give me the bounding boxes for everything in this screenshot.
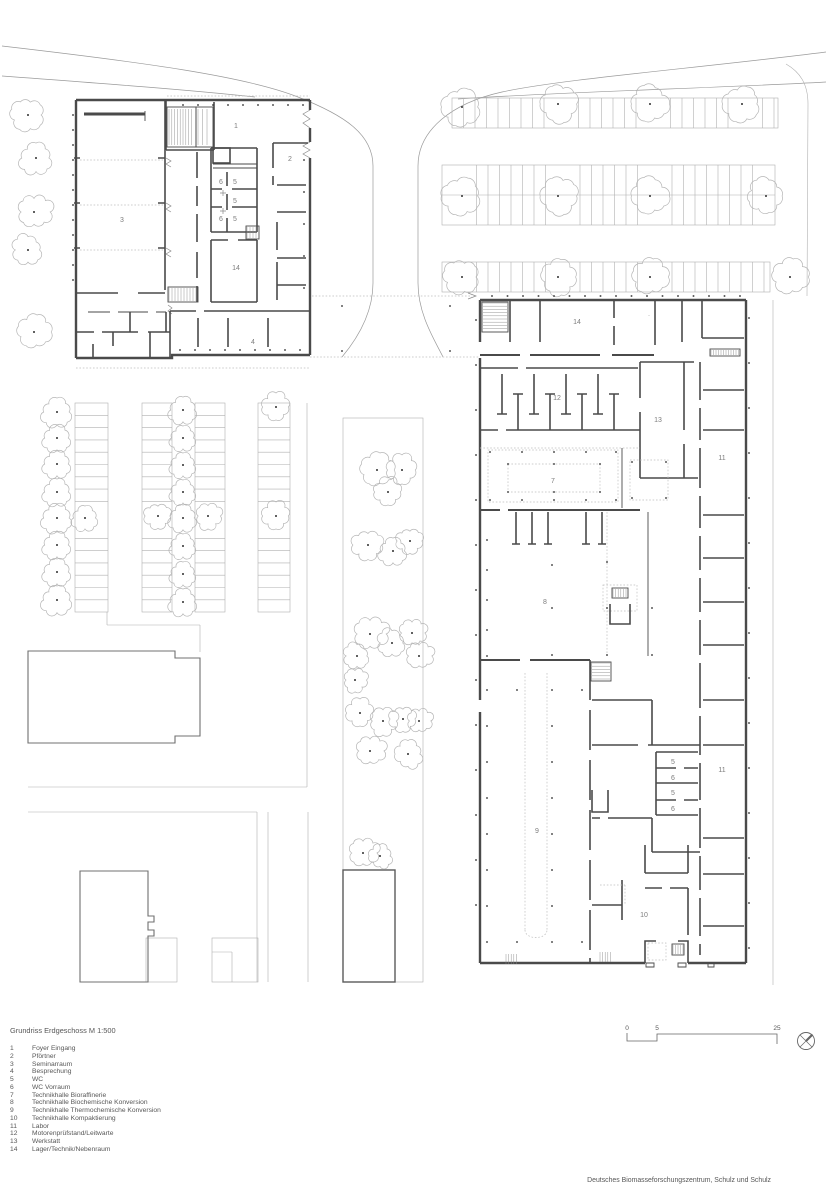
room-label: 6 bbox=[671, 775, 675, 782]
neighbor-buildings bbox=[28, 651, 200, 982]
tree-symbol bbox=[406, 642, 435, 667]
legend-item-number: 6 bbox=[10, 1084, 32, 1092]
legend-item-number: 2 bbox=[10, 1053, 32, 1061]
tree-symbol bbox=[407, 708, 433, 731]
tree-symbol bbox=[343, 642, 368, 669]
scale-tick-label: 0 bbox=[625, 1025, 629, 1032]
room-label: 11 bbox=[718, 767, 725, 774]
tree-symbol bbox=[722, 86, 759, 123]
legend-item-number: 9 bbox=[10, 1107, 32, 1115]
tree-symbol bbox=[370, 707, 399, 736]
legend-item-label: Werkstatt bbox=[32, 1138, 60, 1146]
legend-item-number: 3 bbox=[10, 1061, 32, 1069]
room-label: 14 bbox=[573, 319, 581, 326]
plaza bbox=[76, 96, 480, 368]
room-label: 3 bbox=[120, 217, 124, 224]
tree-symbol bbox=[772, 258, 810, 294]
legend-item: 7Technikhalle Bioraffinerie bbox=[10, 1092, 161, 1100]
room-label: 6 bbox=[219, 179, 223, 186]
tree-symbol bbox=[346, 697, 374, 726]
tree-symbol bbox=[262, 391, 290, 420]
room-legend: 1Foyer Eingang2Pförtner3Seminarraum4Besp… bbox=[10, 1045, 161, 1154]
tree-symbol bbox=[262, 500, 290, 529]
tree-symbol bbox=[40, 397, 71, 428]
room-label: 5 bbox=[671, 759, 675, 766]
room-label: 5 bbox=[233, 216, 237, 223]
legend-item: 8Technikhalle Biochemische Konversion bbox=[10, 1099, 161, 1107]
legend-item: 9Technikhalle Thermochemische Konversion bbox=[10, 1107, 161, 1115]
room-label: 6 bbox=[671, 806, 675, 813]
legend-item-number: 11 bbox=[10, 1123, 32, 1131]
drawing-sheet: 126556531441412131178565611910 0525 Grun… bbox=[0, 0, 828, 1200]
tree-symbol bbox=[443, 261, 479, 295]
legend-item: 14Lager/Technik/Nebenraum bbox=[10, 1146, 161, 1154]
legend-item-label: Technikhalle Kompaktierung bbox=[32, 1115, 116, 1123]
legend-item-number: 12 bbox=[10, 1130, 32, 1138]
legend-item-label: WC bbox=[32, 1076, 43, 1084]
stair-hatching bbox=[169, 109, 739, 964]
legend-item: 11Labor bbox=[10, 1123, 161, 1131]
legend-item-number: 4 bbox=[10, 1068, 32, 1076]
tree-symbol bbox=[356, 736, 387, 764]
room-label: 9 bbox=[535, 828, 539, 835]
tree-symbol bbox=[349, 838, 380, 866]
legend-item: 12Motorenprüfstand/Leitwarte bbox=[10, 1130, 161, 1138]
project-caption: Deutsches Biomasseforschungszentrum, Sch… bbox=[587, 1177, 771, 1184]
site-plan-drawing: 126556531441412131178565611910 0525 bbox=[0, 0, 828, 1200]
legend-item-label: Besprechung bbox=[32, 1068, 71, 1076]
tree-symbol bbox=[196, 503, 223, 530]
legend-item-label: Pförtner bbox=[32, 1053, 56, 1061]
legend-item-label: Seminarraum bbox=[32, 1061, 72, 1069]
legend-item: 6WC Vorraum bbox=[10, 1084, 161, 1092]
tree-symbol bbox=[12, 233, 42, 264]
room-label: 13 bbox=[654, 417, 662, 424]
tree-symbol bbox=[540, 85, 578, 125]
legend-item-number: 8 bbox=[10, 1099, 32, 1107]
legend-item-number: 14 bbox=[10, 1146, 32, 1154]
green-strip bbox=[343, 418, 423, 982]
room-label: 12 bbox=[553, 395, 561, 402]
room-label: 11 bbox=[718, 455, 725, 462]
tree-symbol bbox=[17, 314, 52, 348]
tree-symbol bbox=[40, 503, 71, 534]
tree-symbol bbox=[10, 100, 44, 132]
legend-item: 5WC bbox=[10, 1076, 161, 1084]
legend-item-number: 5 bbox=[10, 1076, 32, 1084]
tree-symbol bbox=[344, 668, 368, 693]
legend-item: 4Besprechung bbox=[10, 1068, 161, 1076]
legend-item-number: 1 bbox=[10, 1045, 32, 1053]
drawing-title: Grundriss Erdgeschoss M 1:500 bbox=[10, 1026, 116, 1035]
tree-symbol bbox=[360, 452, 395, 486]
scale-bar: 0525 bbox=[625, 1025, 781, 1044]
legend-item: 2Pförtner bbox=[10, 1053, 161, 1061]
tree-symbol bbox=[441, 177, 480, 216]
trees-layer bbox=[10, 84, 810, 869]
room-label: 5 bbox=[233, 198, 237, 205]
legend-item-label: Labor bbox=[32, 1123, 49, 1131]
room-label: 1 bbox=[234, 123, 238, 130]
tree-symbol bbox=[18, 142, 51, 175]
room-label: 5 bbox=[671, 790, 675, 797]
scale-tick-label: 25 bbox=[773, 1025, 781, 1032]
room-label: 14 bbox=[232, 265, 240, 272]
room-label: 10 bbox=[640, 912, 648, 919]
legend-item: 13Werkstatt bbox=[10, 1138, 161, 1146]
legend-item: 3Seminarraum bbox=[10, 1061, 161, 1069]
scale-tick-label: 5 bbox=[655, 1025, 659, 1032]
room-label: 5 bbox=[233, 179, 237, 186]
legend-item-number: 13 bbox=[10, 1138, 32, 1146]
legend-item-label: Technikhalle Thermochemische Konversion bbox=[32, 1107, 161, 1115]
building-left bbox=[74, 100, 310, 358]
building-right bbox=[480, 300, 746, 967]
legend-item-label: Lager/Technik/Nebenraum bbox=[32, 1146, 110, 1154]
tree-symbol bbox=[351, 531, 384, 560]
legend-item-label: Technikhalle Biochemische Konversion bbox=[32, 1099, 148, 1107]
tree-symbol bbox=[386, 453, 417, 485]
tree-symbol bbox=[18, 195, 54, 227]
room-label: 7 bbox=[551, 478, 555, 485]
legend-item-label: Motorenprüfstand/Leitwarte bbox=[32, 1130, 113, 1138]
tree-symbol bbox=[374, 476, 402, 505]
site-roads bbox=[2, 46, 826, 985]
north-arrow-icon bbox=[798, 1033, 815, 1050]
tree-symbol bbox=[40, 585, 71, 616]
legend-item-label: Foyer Eingang bbox=[32, 1045, 76, 1053]
legend-item-label: Technikhalle Bioraffinerie bbox=[32, 1092, 106, 1100]
room-label: 4 bbox=[251, 339, 255, 346]
legend-item: 10Technikhalle Kompaktierung bbox=[10, 1115, 161, 1123]
legend-item-number: 10 bbox=[10, 1115, 32, 1123]
legend-item-label: WC Vorraum bbox=[32, 1084, 70, 1092]
tree-symbol bbox=[441, 88, 480, 127]
room-label: 8 bbox=[543, 599, 547, 606]
room-label: 2 bbox=[288, 156, 292, 163]
room-label: 6 bbox=[219, 216, 223, 223]
legend-item: 1Foyer Eingang bbox=[10, 1045, 161, 1053]
legend-item-number: 7 bbox=[10, 1092, 32, 1100]
